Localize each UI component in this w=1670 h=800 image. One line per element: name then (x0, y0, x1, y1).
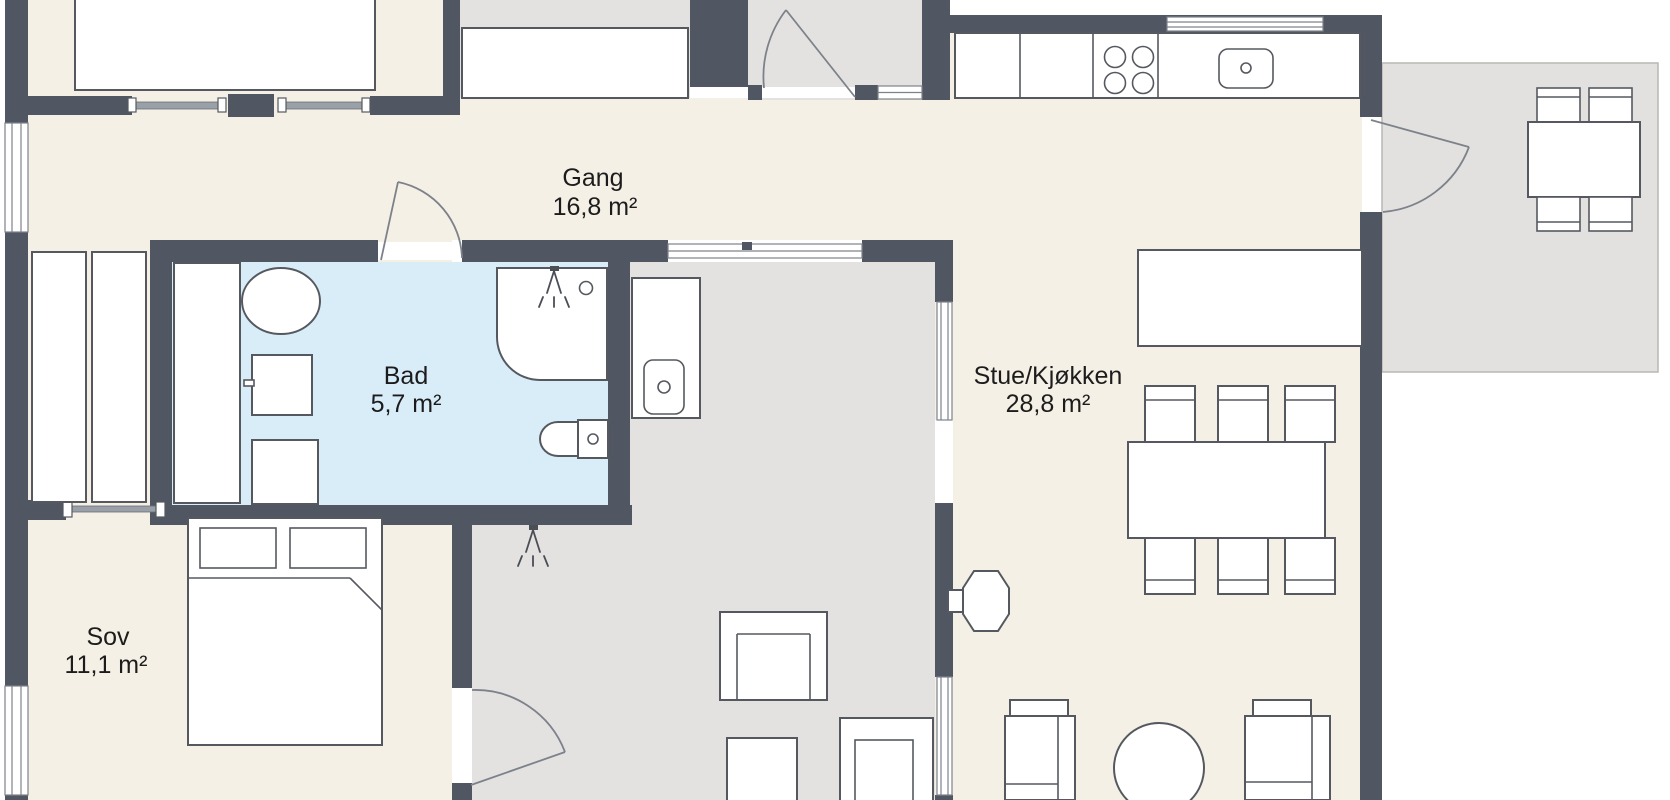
washing-machine-icon (244, 355, 312, 415)
wall-bath-east (608, 262, 630, 505)
bathroom-cabinet-icon (174, 263, 240, 503)
floor-plan-canvas: Gang 16,8 m² Bad 5,7 m² Sov 11,1 m² Stue… (0, 0, 1670, 800)
outdoor-table-icon (1528, 122, 1640, 197)
floor-plan: Gang 16,8 m² Bad 5,7 m² Sov 11,1 m² Stue… (0, 0, 1670, 800)
wall-upper-room-west (443, 0, 460, 98)
wall-bath-north-b (462, 240, 630, 262)
stue-passage-threshold (935, 420, 953, 503)
wall-sov-east-upper (452, 513, 472, 688)
armchair-icon (1005, 700, 1075, 800)
sliding-door-icon (136, 102, 218, 109)
window-entrance-sidelight-icon (878, 86, 922, 99)
floor-entrance (748, 0, 928, 100)
bedroom-door-threshold (452, 690, 472, 781)
room-label-bad: Bad (384, 362, 428, 390)
sink-icon (1219, 49, 1273, 88)
chair-icon (1145, 386, 1335, 442)
shower-icon (497, 266, 607, 380)
toilet-icon (540, 420, 608, 458)
bathroom-cabinet-icon (252, 440, 318, 504)
terrace-door-threshold (1362, 117, 1380, 212)
wall-middle-north-b (862, 240, 935, 262)
wall-bath-north-a (150, 240, 378, 262)
coffee-table-icon (1114, 723, 1204, 800)
kitchen-island-icon (1138, 250, 1362, 346)
sideboard-icon (462, 28, 688, 98)
room-area-stue-kjokken: 28,8 m² (1006, 390, 1091, 418)
chair-icon (1145, 538, 1335, 594)
entrance-door-threshold (762, 87, 855, 98)
sofa-icon (840, 718, 933, 800)
wall-bath-west (150, 240, 172, 525)
wall-west (5, 0, 28, 800)
wall-sov-east-lower (452, 783, 472, 800)
window-middle-room-north-icon (668, 242, 862, 258)
side-table-icon (727, 738, 797, 800)
vanity-sink-icon (632, 278, 700, 418)
pillow-icon (290, 528, 366, 568)
wall-top-left-a (28, 96, 132, 115)
sliding-door-icon (286, 102, 362, 109)
wall-top-left-b (370, 96, 460, 115)
window-kitchen-north-icon (1167, 17, 1323, 31)
room-label-stue-kjokken: Stue/Kjøkken (974, 362, 1123, 390)
wardrobe-icon (75, 0, 375, 90)
armchair-icon (720, 612, 827, 700)
bath-door-threshold (378, 242, 462, 260)
room-area-gang: 16,8 m² (553, 193, 638, 221)
armchair-icon (1245, 700, 1330, 800)
wardrobe-icon (92, 252, 146, 502)
room-label-sov: Sov (86, 623, 130, 651)
washbasin-icon (242, 268, 320, 334)
wall-pocket-center-post (228, 94, 274, 117)
room-label-gang: Gang (562, 164, 623, 192)
wall-middle-north-a (630, 240, 668, 262)
room-area-sov: 11,1 m² (65, 651, 148, 679)
window-stue-west-lower-icon (937, 677, 952, 795)
dining-group (1128, 386, 1335, 594)
window-west-upper-icon (5, 123, 28, 232)
wall-entrance-west (690, 0, 748, 87)
wardrobe-icon (32, 252, 86, 502)
wall-entrance-south-b (855, 85, 878, 100)
wall-east-upper (1360, 33, 1382, 117)
window-west-lower-icon (5, 686, 28, 795)
room-area-bad: 5,7 m² (371, 390, 442, 418)
dining-table-icon (1128, 442, 1325, 538)
kitchen-counter-icon (955, 33, 1360, 98)
floor-hall-gang (28, 98, 935, 240)
wall-east-lower (1360, 212, 1382, 800)
drain-icon (580, 282, 593, 295)
sliding-door-icon (72, 506, 156, 512)
wall-stue-west-a (935, 240, 953, 302)
pillow-icon (200, 528, 276, 568)
window-stue-west-upper-icon (937, 302, 952, 420)
bed-icon (188, 518, 382, 745)
wall-stue-west-c (935, 795, 953, 800)
wall-entrance-south-a (748, 85, 762, 100)
